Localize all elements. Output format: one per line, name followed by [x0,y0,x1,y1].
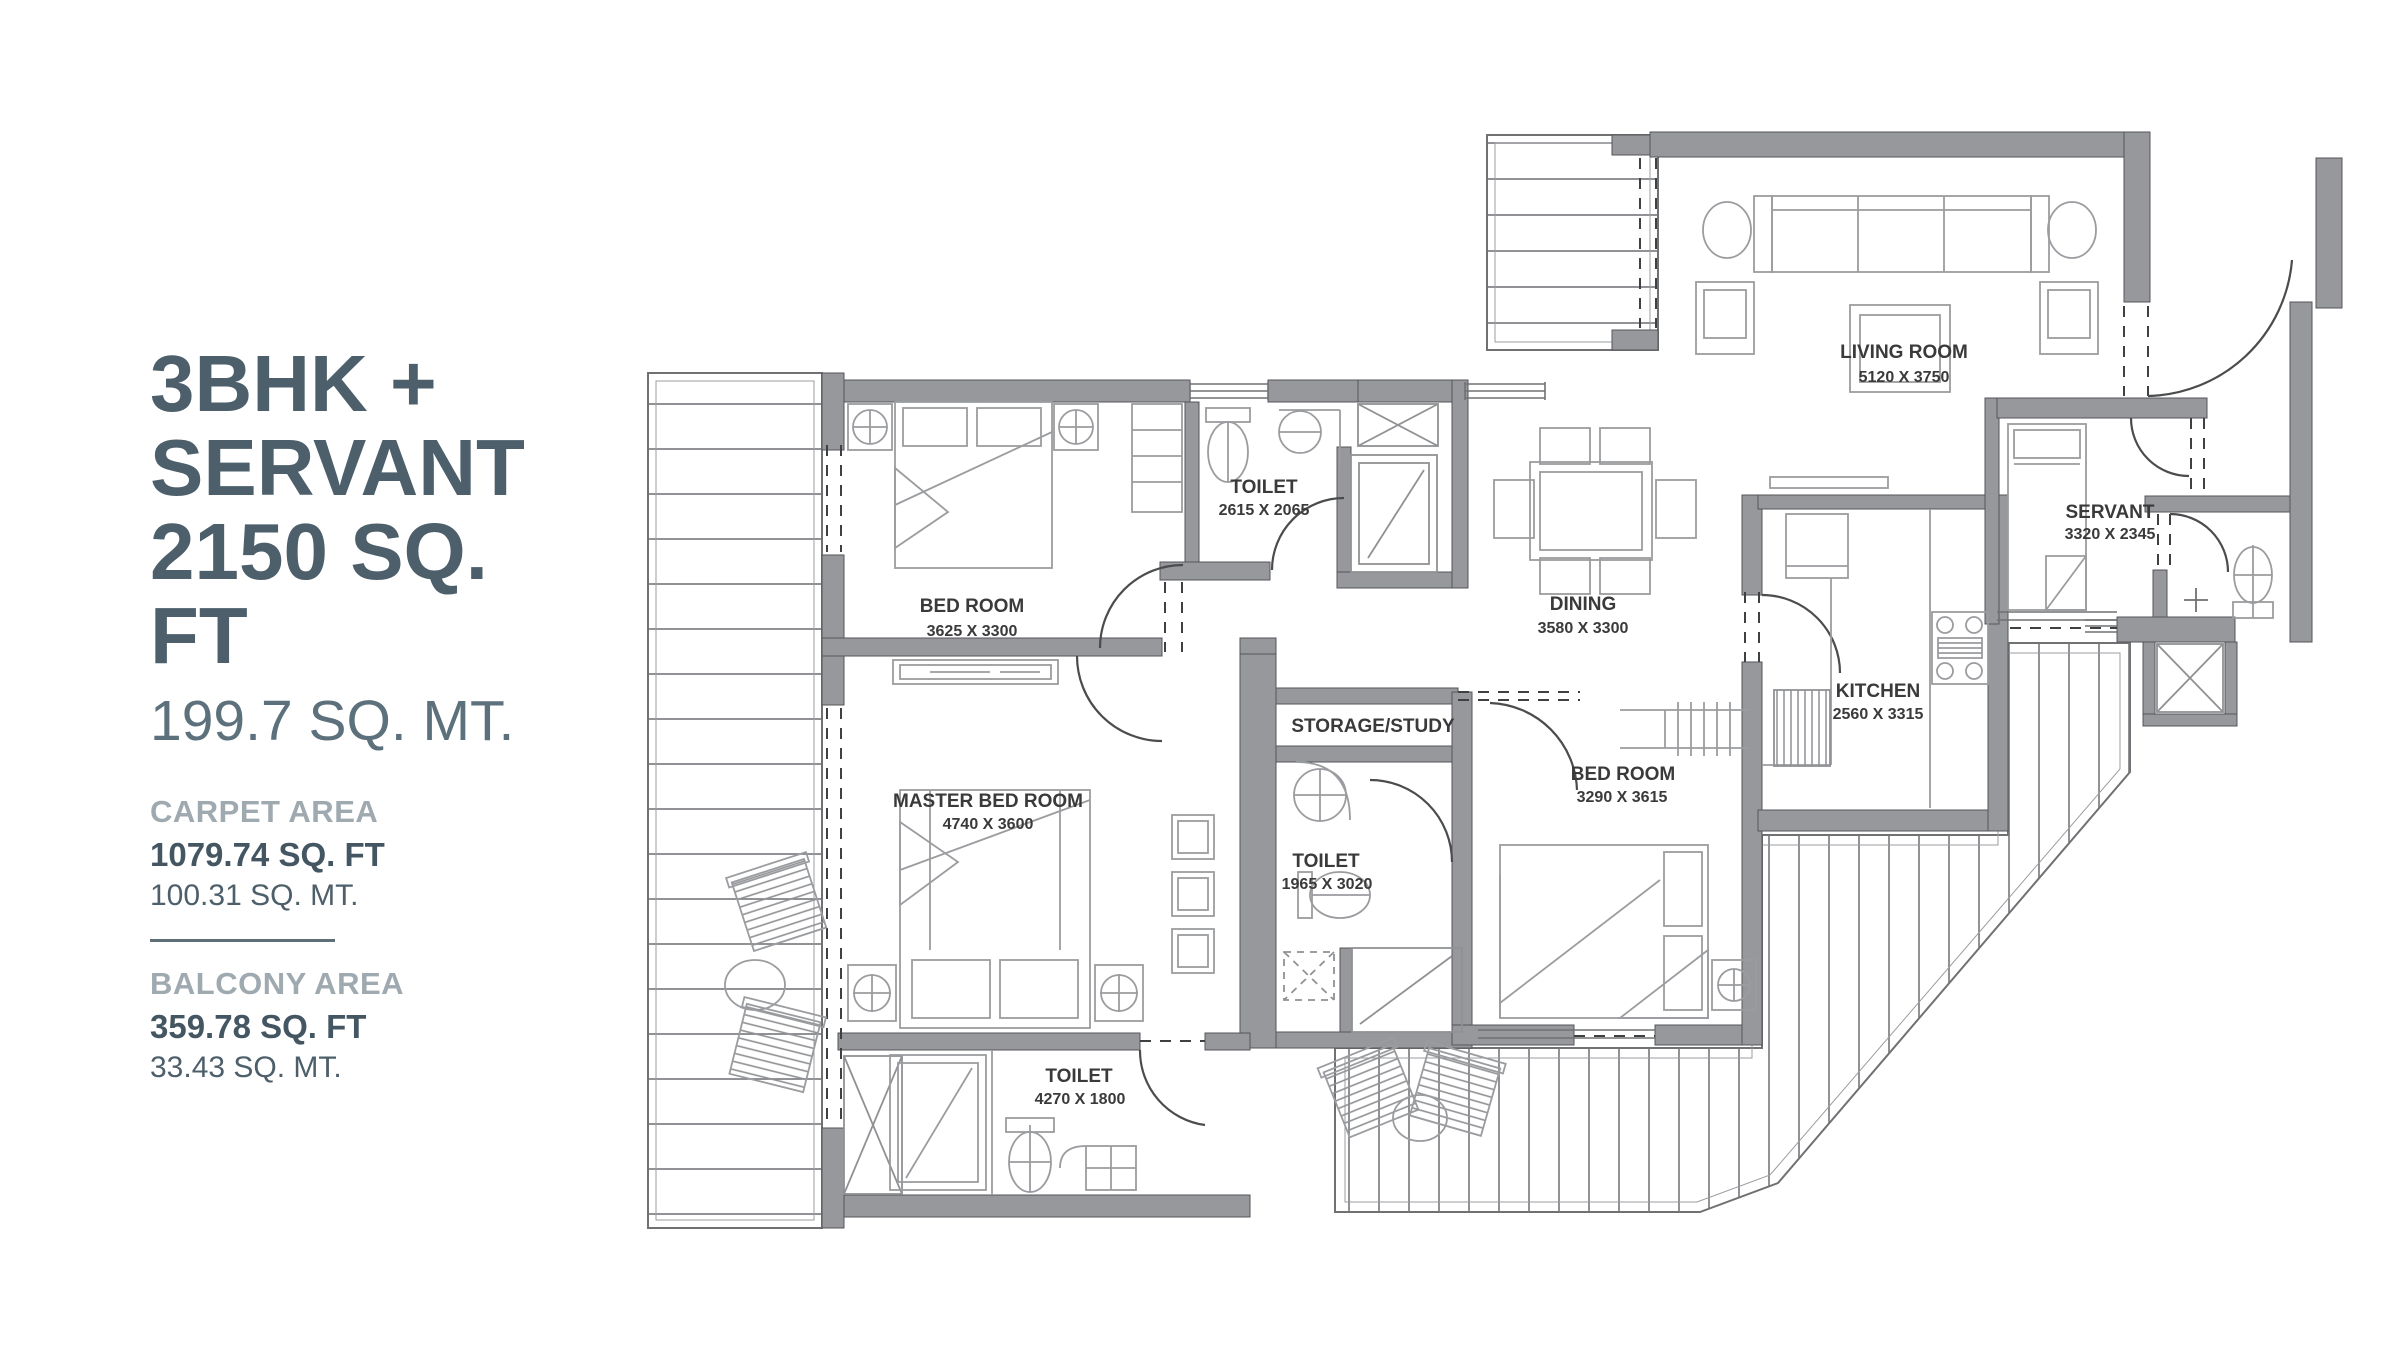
wc-servant [2233,545,2273,618]
nightstand [1054,404,1098,450]
plan-subtitle: 199.7 SQ. MT. [150,688,570,754]
room-label-toilet-mid: TOILET [1292,851,1360,872]
room-label-storage: STORAGE/STUDY [1291,716,1455,737]
room-label-dining: DINING [1550,594,1617,615]
shelf-units [1172,815,1214,973]
carpet-area-sqft: 1079.74 SQ. FT [150,836,570,874]
wc-toilet-bottom [1006,1118,1054,1192]
room-dim-master: 4740 X 3600 [943,816,1034,833]
bed-right [1500,845,1708,1018]
room-dim-kitchen: 2560 X 3315 [1833,706,1924,723]
carpet-area-block: CARPET AREA 1079.74 SQ. FT 100.31 SQ. MT… [150,794,570,913]
room-label-living: LIVING ROOM [1840,342,1968,363]
drain-cross [2184,588,2208,612]
room-dim-servant: 3320 X 2345 [2065,526,2156,543]
balcony-area-block: BALCONY AREA 359.78 SQ. FT 33.43 SQ. MT. [150,966,570,1085]
balcony-area-sqft: 359.78 SQ. FT [150,1008,570,1046]
armchair-right [2040,282,2098,354]
balcony-left [648,373,822,1228]
armchair-left [1696,282,1754,354]
duct-x-dashed [1284,952,1334,1000]
plan-title-line2: SERVANT [150,426,570,510]
side-table-round-left [1703,202,1751,258]
plan-title-line3: 2150 SQ. FT [150,510,570,678]
stove [1932,612,1988,684]
balcony-area-heading: BALCONY AREA [150,966,570,1002]
shaft-x-bottomleft [844,1056,902,1194]
sink-toilet-bottom [1060,1146,1136,1190]
bed-top [895,402,1052,568]
balcony-area-sqmt: 33.43 SQ. MT. [150,1051,570,1085]
dining-table [1494,428,1696,594]
balcony-living [1487,135,1658,350]
sink-toilet-mid [1294,762,1350,821]
carpet-area-heading: CARPET AREA [150,794,570,830]
info-panel: 3BHK + SERVANT 2150 SQ. FT 199.7 SQ. MT.… [150,342,570,1085]
room-dim-toilet-top: 2615 X 2065 [1219,502,1310,519]
plan-title: 3BHK + SERVANT 2150 SQ. FT [150,342,570,678]
lift-box [1351,455,1437,572]
sink-toilet-top [1279,410,1340,470]
room-dim-toilet-bottom: 4270 X 1800 [1035,1091,1126,1108]
panel-divider [150,939,335,942]
room-label-servant: SERVANT [2065,502,2154,523]
duct-x-top [1358,404,1438,446]
sofa [1754,196,2049,272]
side-table-round-right [2048,202,2096,258]
room-label-toilet-bottom: TOILET [1045,1066,1113,1087]
shower-toilet-bottom [890,1055,986,1190]
room-label-toilet-top: TOILET [1230,477,1298,498]
kitchen-sink [1774,690,1830,766]
nightstand [1095,965,1143,1021]
wc-toilet-top [1206,408,1250,482]
room-dim-bedroom-top: 3625 X 3300 [927,623,1018,640]
room-label-bedroom-right: BED ROOM [1571,764,1676,785]
room-dim-living: 5120 X 3750 [1859,369,1950,386]
room-label-master: MASTER BED ROOM [893,791,1083,812]
floorplan-page: 3BHK + SERVANT 2150 SQ. FT 199.7 SQ. MT.… [0,0,2400,1350]
nightstand [848,404,892,450]
shaft-x-right [2157,644,2223,712]
shower-mid [1352,948,1462,1032]
room-dim-bedroom-right: 3290 X 3615 [1577,789,1668,806]
room-dim-dining: 3580 X 3300 [1538,620,1629,637]
carpet-area-sqmt: 100.31 SQ. MT. [150,879,570,913]
room-label-bedroom-top: BED ROOM [920,596,1025,617]
room-dim-toilet-mid: 1965 X 3020 [1282,876,1373,893]
room-labels: LIVING ROOM 5120 X 3750 TOILET 2615 X 20… [893,342,2155,1108]
dresser [893,660,1058,684]
wardrobe-comb [1620,702,1750,756]
room-label-kitchen: KITCHEN [1836,681,1920,702]
plan-title-line1: 3BHK + [150,342,570,426]
nightstand [848,965,896,1021]
wardrobe [1132,404,1182,512]
